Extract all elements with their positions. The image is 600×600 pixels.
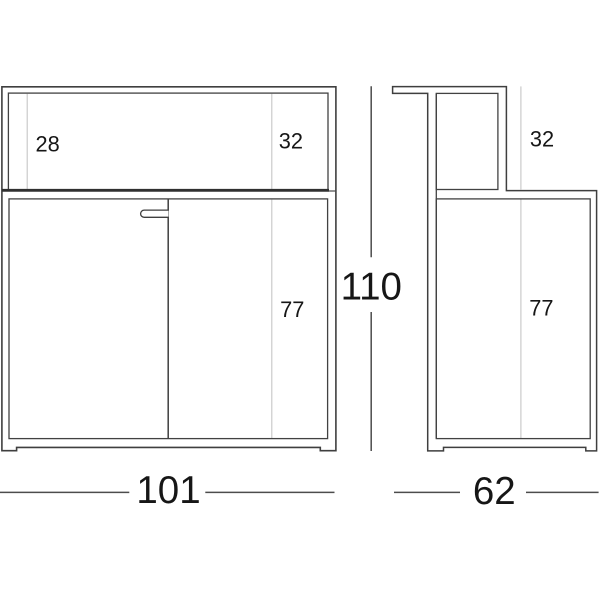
svg-text:32: 32 [530,126,554,151]
svg-text:101: 101 [136,469,200,512]
svg-text:77: 77 [280,297,304,322]
svg-text:62: 62 [473,470,516,513]
svg-text:77: 77 [529,295,553,320]
svg-text:32: 32 [279,128,303,153]
svg-text:110: 110 [341,265,402,308]
svg-text:28: 28 [35,132,59,157]
